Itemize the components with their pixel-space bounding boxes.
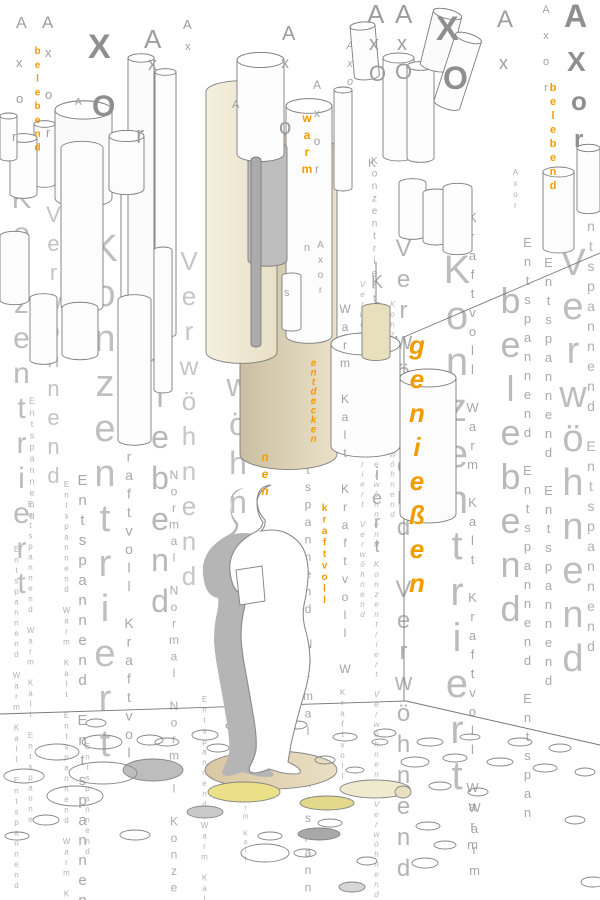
scatter-letter: A: [367, 1, 384, 27]
word-column: belebend: [547, 82, 558, 194]
scatter-letter: A: [564, 0, 587, 32]
scatter-letter: x: [499, 54, 508, 72]
scatter-letter: x: [281, 56, 289, 72]
word-layer-front: belebendwarmbelebendentdeckengenießenkra…: [0, 0, 600, 900]
scatter-letter: x: [369, 34, 379, 54]
scatter-letter: x: [397, 34, 407, 54]
scatter-letter: O: [369, 63, 386, 85]
scatter-letter: r: [46, 126, 50, 139]
scatter-letter: X: [88, 30, 111, 64]
scatter-letter: A: [282, 24, 295, 44]
scatter-letter: o: [45, 88, 52, 101]
scatter-letter: r: [136, 124, 144, 148]
scatter-letter: o: [279, 116, 291, 138]
scatter-letter: K: [368, 157, 376, 169]
scatter-letter: X: [567, 48, 586, 76]
scatter-letter: O: [92, 92, 115, 122]
scatter-letter: A: [395, 1, 412, 27]
scatter-letter: s: [284, 288, 290, 299]
scatter-letter: x: [185, 42, 191, 53]
scatter-letter: A: [16, 16, 27, 32]
scatter-letter: x: [16, 56, 23, 69]
word-column: kraftvoll: [319, 503, 329, 607]
word-column: nen: [259, 450, 271, 501]
scatter-letter: A: [75, 98, 82, 108]
scatter-letter: x: [148, 55, 157, 73]
scatter-letter: x: [45, 46, 52, 59]
scatter-letter: r: [574, 128, 583, 152]
scatter-letter: n: [304, 243, 310, 254]
scatter-letter: o: [16, 92, 23, 105]
scatter-letter: r: [12, 130, 16, 143]
scatter-letter: A: [232, 100, 239, 111]
scatter-letter: O: [443, 62, 468, 94]
word-column: Axor: [311, 78, 323, 190]
scatter-letter: o: [571, 88, 587, 114]
scatter-letter: X: [436, 12, 459, 46]
scatter-letter: A: [183, 18, 192, 31]
axor-concept-poster: KonzentriertVerwöhnendKonzentriertbelebe…: [0, 0, 600, 900]
word-column: Axor: [315, 240, 325, 300]
word-column: Warm Kalt Kraftvoll W: [339, 302, 351, 680]
word-column: belebend: [32, 46, 42, 156]
scatter-letter: A: [144, 26, 161, 52]
scatter-letter: A: [497, 8, 513, 32]
word-column: genießen: [404, 330, 430, 602]
scatter-letter: A: [42, 14, 53, 31]
word-column: entdecken: [308, 358, 318, 444]
scatter-letter: O: [395, 61, 412, 83]
